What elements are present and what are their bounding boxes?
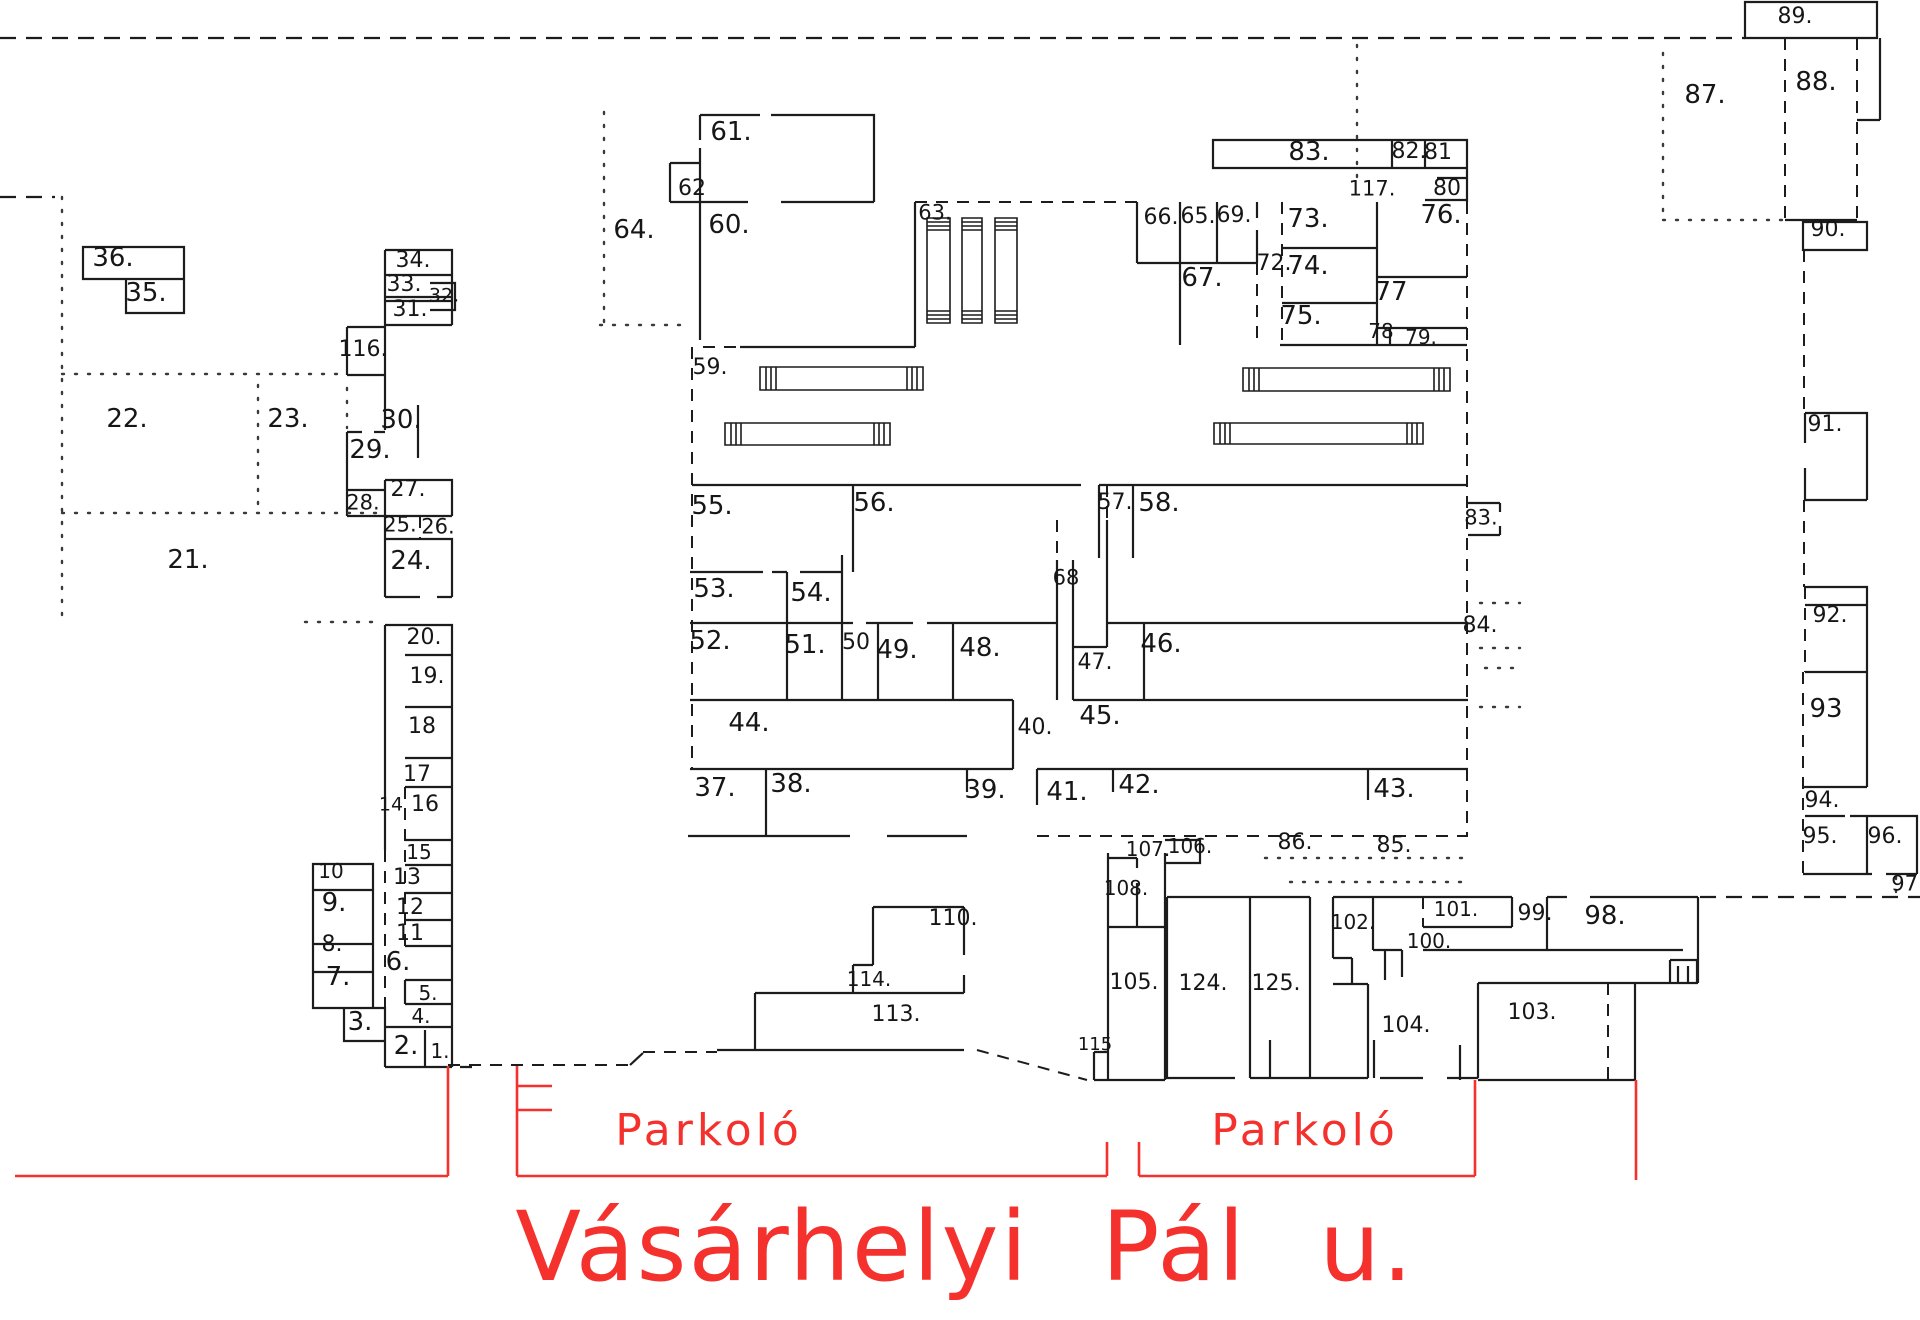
plot-label: 114. [847, 969, 892, 989]
plot-label: 37. [694, 775, 735, 801]
plot-label: 113. [872, 1004, 921, 1026]
plot-label: 50 [842, 632, 870, 654]
plot-label: 85. [1377, 835, 1412, 857]
plot-label: 23. [267, 406, 308, 432]
walls-dashed [385, 38, 1857, 1080]
plot-label: 72. [1257, 253, 1292, 275]
plot-label: 47. [1078, 652, 1113, 674]
plot-label: 124. [1179, 973, 1228, 995]
plot-label: 2. [394, 1033, 419, 1059]
walls-solid [83, 2, 1917, 1080]
plot-label: 104. [1382, 1015, 1431, 1037]
parking-label-east: Parkoló [1211, 1109, 1399, 1153]
plot-label: 68 [1053, 568, 1080, 589]
plot-label: 116. [339, 339, 388, 361]
plot-label: 95. [1803, 826, 1838, 848]
plot-label: 87. [1684, 82, 1725, 108]
plot-label: 36. [92, 245, 133, 271]
plot-label: 13 [393, 867, 421, 889]
plot-label: 69. [1217, 205, 1252, 227]
plot-label: 19. [410, 666, 445, 688]
plot-label: 75. [1280, 303, 1321, 329]
plot-label: 40. [1018, 717, 1053, 739]
plot-label: 78 [1368, 321, 1393, 341]
plot-label: 108. [1104, 878, 1149, 898]
plot-label: 88. [1795, 69, 1836, 95]
plot-label: 91. [1808, 414, 1843, 436]
plot-label: 44. [728, 710, 769, 736]
plot-label: 81 [1424, 142, 1452, 164]
plot-label: 60. [708, 212, 749, 238]
plot-label: 29. [349, 437, 390, 463]
plot-label: 66. [1144, 207, 1179, 229]
plot-label: 94. [1805, 790, 1840, 812]
plot-label: 42. [1118, 772, 1159, 798]
plot-label: 10 [318, 861, 343, 881]
plot-label: 5. [418, 983, 437, 1003]
plot-label: 24. [390, 548, 431, 574]
plot-label: 96. [1868, 826, 1903, 848]
plot-label: 26. [421, 517, 454, 538]
plot-label: 73. [1287, 206, 1328, 232]
plot-label: 89. [1778, 6, 1813, 28]
plot-label: 101. [1434, 899, 1479, 919]
plot-label: 59. [693, 357, 728, 379]
plot-label: 102. [1331, 912, 1376, 932]
plot-label: 48. [959, 635, 1000, 661]
plot-label: 25. [383, 515, 416, 536]
plot-label: 90. [1811, 219, 1846, 241]
plot-label: 20. [407, 627, 442, 649]
plot-label: 1. [430, 1041, 449, 1061]
plot-label: 83. [1464, 508, 1497, 529]
plot-label: 33. [387, 274, 422, 296]
plot-label: 84. [1463, 615, 1498, 637]
plot-label: 30. [380, 407, 421, 433]
plot-label: 93 [1809, 696, 1842, 722]
plot-label: 115 [1078, 1036, 1112, 1054]
plot-label: 57. [1098, 492, 1133, 514]
plot-label: 58. [1138, 490, 1179, 516]
plot-label: 49. [876, 637, 917, 663]
plot-label: 63. [918, 203, 951, 224]
plot-label: 28. [346, 493, 379, 514]
plot-label: 21. [167, 547, 208, 573]
plot-label: 38. [770, 771, 811, 797]
plot-label: 34. [396, 250, 431, 272]
plot-label: 86. [1278, 832, 1313, 854]
parking-label-west: Parkoló [615, 1109, 803, 1153]
site-plan: Parkoló Parkoló Vásárhelyi Pál u. 36.35.… [0, 0, 1920, 1320]
plot-label: 51. [784, 632, 825, 658]
shelf-symbols [725, 218, 1450, 445]
plot-label: 67. [1181, 265, 1222, 291]
plot-label: 32. [429, 287, 459, 306]
plot-label: 53. [693, 576, 734, 602]
plot-label: 125. [1252, 973, 1301, 995]
plot-label: 92. [1813, 605, 1848, 627]
plot-label: 76. [1420, 202, 1461, 228]
plot-label: 83. [1288, 139, 1329, 165]
plot-label: 74. [1287, 253, 1328, 279]
plot-label: 7. [326, 964, 351, 990]
plot-label: 46. [1140, 631, 1181, 657]
plot-label: 107. [1126, 839, 1171, 859]
plot-label: 80 [1433, 178, 1461, 200]
plot-label: 54. [790, 580, 831, 606]
plot-label: 97. [1891, 874, 1920, 895]
plot-label: 98. [1584, 903, 1625, 929]
plot-label: 55. [691, 493, 732, 519]
plot-label: 100. [1407, 931, 1452, 951]
plot-label: 9. [322, 890, 347, 916]
plot-label: 52. [689, 628, 730, 654]
plot-label: 62 [678, 178, 706, 200]
plot-label: 43. [1373, 776, 1414, 802]
plot-label: 31. [393, 299, 428, 321]
plot-label: 17 [403, 764, 431, 786]
plot-label: 39. [964, 777, 1005, 803]
plot-label: 11 [396, 923, 424, 945]
plot-label: 79. [1405, 327, 1437, 347]
plot-label: 22. [106, 406, 147, 432]
plot-label: 56. [853, 490, 894, 516]
plot-label: 6. [386, 949, 411, 975]
plot-label: 99. [1518, 903, 1553, 925]
plot-label: 45. [1079, 703, 1120, 729]
plot-label: 41. [1046, 779, 1087, 805]
plot-label: 4. [411, 1006, 430, 1026]
plot-label: 117. [1349, 179, 1396, 200]
plot-label: 27. [391, 479, 426, 501]
plot-label: 15 [406, 842, 431, 862]
street-name-label: Vásárhelyi Pál u. [515, 1199, 1414, 1295]
plot-label: 16 [411, 794, 439, 816]
plot-label: 18 [408, 716, 436, 738]
plot-label: 14 [379, 796, 403, 815]
plot-label: 65. [1181, 206, 1216, 228]
plot-label: 35. [125, 280, 166, 306]
plot-label: 8. [322, 934, 343, 956]
plot-label: 106. [1168, 836, 1213, 856]
plot-label: 77 [1374, 279, 1407, 305]
plot-label: 82. [1392, 141, 1427, 163]
plot-label: 103. [1508, 1002, 1557, 1024]
plot-label: 110. [929, 908, 978, 930]
plot-label: 64. [613, 217, 654, 243]
plot-label: 61. [710, 119, 751, 145]
plot-label: 3. [348, 1009, 373, 1035]
plot-label: 105. [1110, 972, 1159, 994]
plot-label: 12 [396, 897, 424, 919]
